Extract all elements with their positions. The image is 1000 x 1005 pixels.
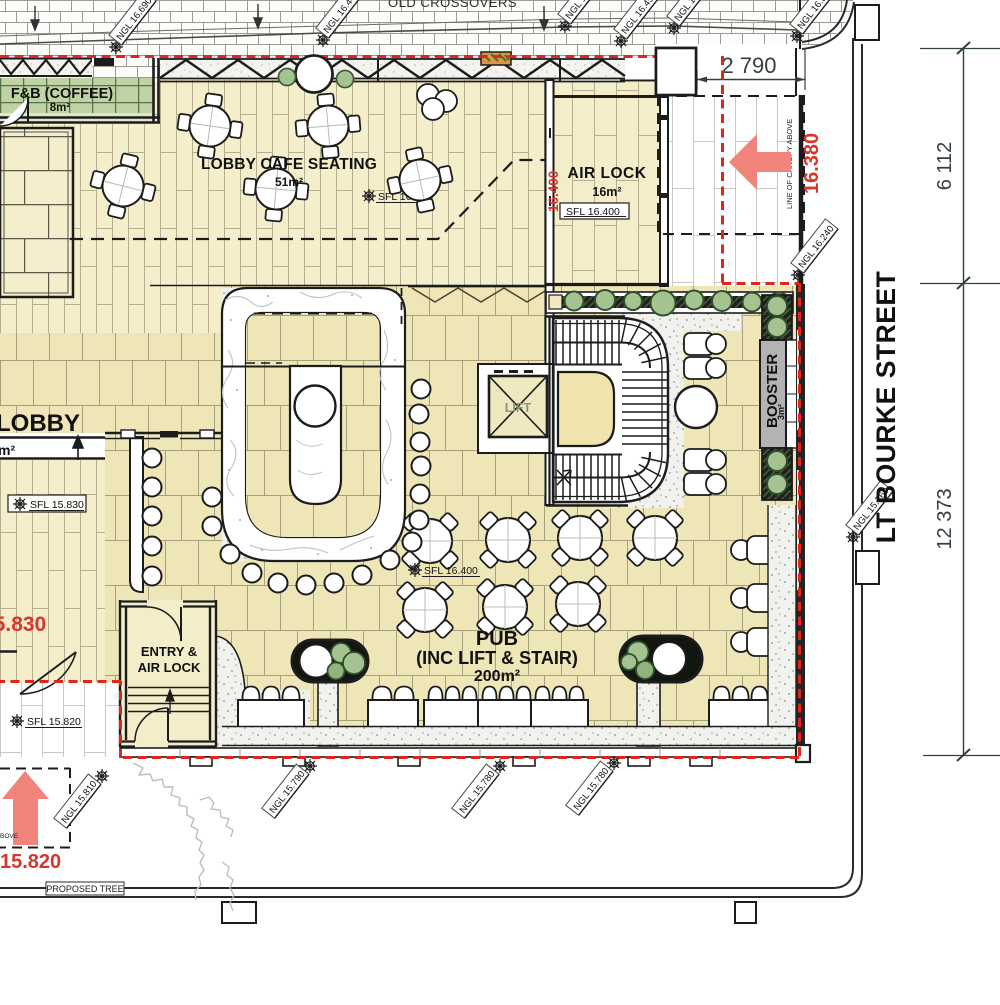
svg-text:15.820: 15.820 [0,851,61,873]
svg-text:51m²: 51m² [275,175,303,189]
svg-text:LOBBY: LOBBY [0,410,80,437]
svg-text:SFL 16.400: SFL 16.400 [424,565,478,577]
svg-text:BOVE: BOVE [0,833,19,840]
svg-text:16.380: 16.380 [801,133,823,194]
svg-text:m²: m² [0,442,15,458]
svg-text:16.400: 16.400 [546,171,561,212]
svg-text:AIR LOCK: AIR LOCK [138,660,201,675]
svg-text:PROPOSED TREE: PROPOSED TREE [46,884,123,894]
svg-text:SFL 15.830: SFL 15.830 [30,499,84,511]
svg-text:200m²: 200m² [474,668,520,685]
svg-text:8m²: 8m² [50,102,71,114]
svg-text:LOBBY CAFE SEATING: LOBBY CAFE SEATING [201,156,377,173]
svg-text:SFL 15.820: SFL 15.820 [27,716,81,728]
svg-text:LT BOURKE STREET: LT BOURKE STREET [871,271,901,544]
svg-text:2 790: 2 790 [721,53,776,78]
svg-text:6 112: 6 112 [934,142,956,191]
svg-text:ENTRY &: ENTRY & [141,644,197,659]
svg-text:LIFT: LIFT [505,401,532,415]
svg-text:F&B (COFFEE): F&B (COFFEE) [11,86,113,102]
svg-text:PUB: PUB [476,628,518,650]
svg-text:3m²: 3m² [776,404,786,420]
svg-text:12 373: 12 373 [934,488,956,549]
svg-text:OLD CROSSOVERS: OLD CROSSOVERS [388,0,517,10]
svg-text:16m²: 16m² [592,185,621,199]
svg-text:(INC LIFT & STAIR): (INC LIFT & STAIR) [416,648,578,668]
svg-text:15.830: 15.830 [0,613,46,636]
svg-text:AIR LOCK: AIR LOCK [568,165,647,182]
